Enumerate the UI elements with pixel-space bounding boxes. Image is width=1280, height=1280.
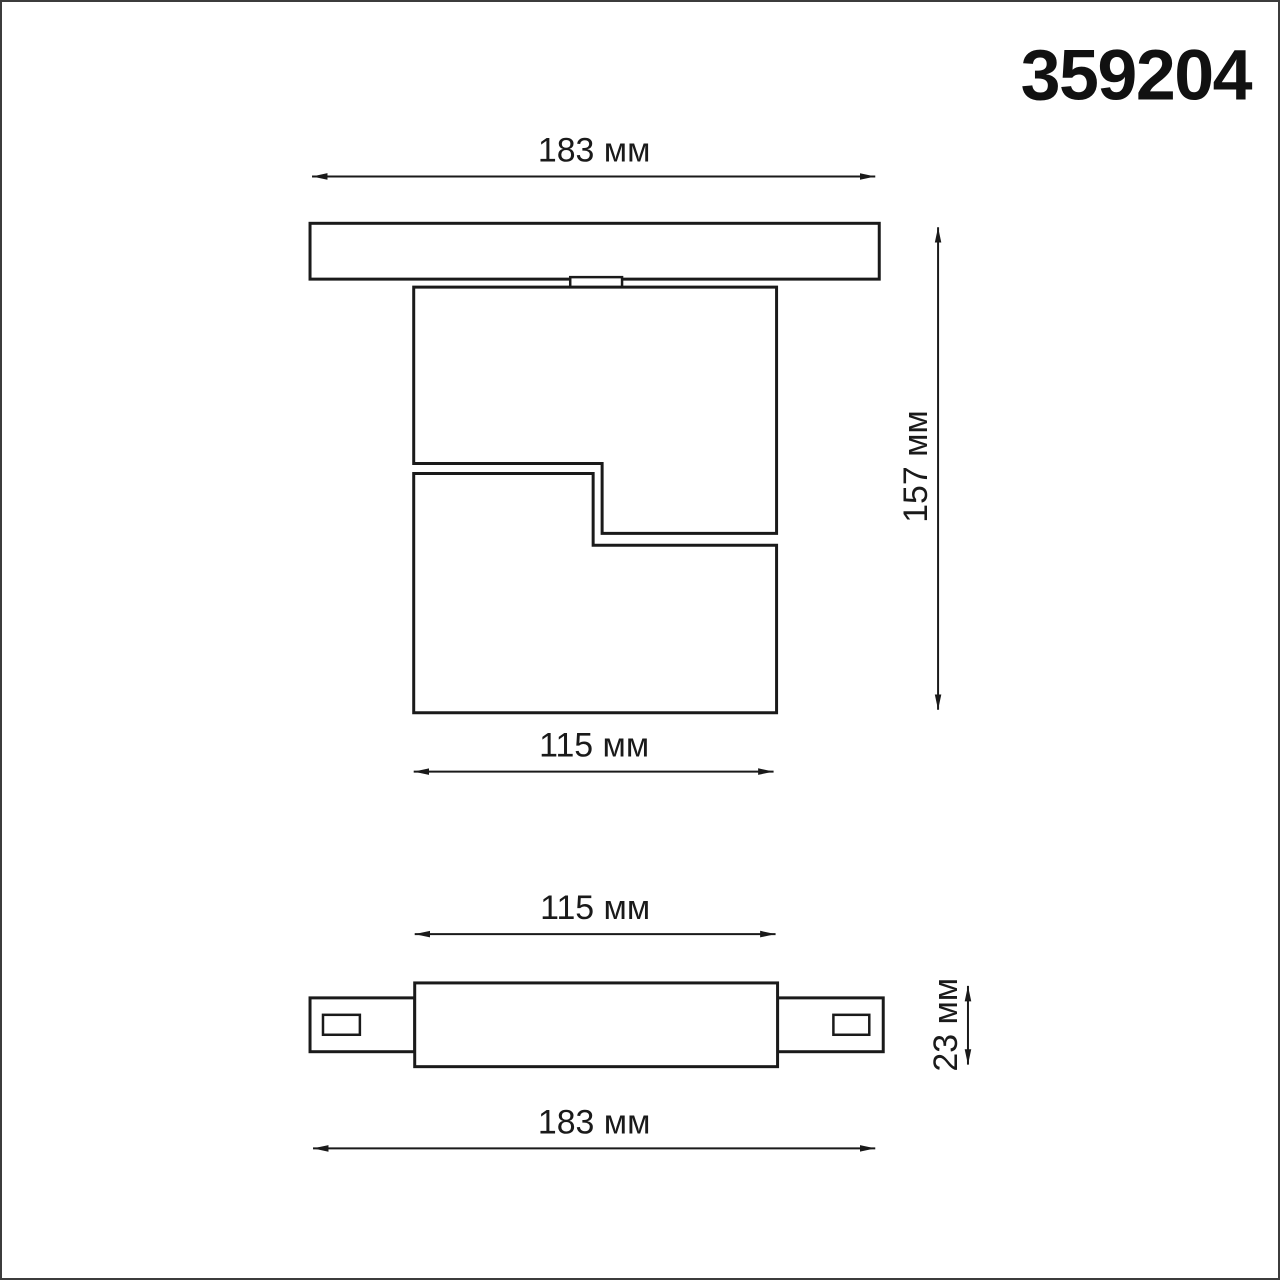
dim-label-connector-total-width: 183 мм — [538, 1103, 651, 1141]
dim-label-connector-depth: 23 мм — [927, 978, 965, 1072]
bottom-view: 115 мм 23 мм 183 мм — [310, 889, 968, 1148]
left-contact-slot — [323, 1015, 360, 1035]
connector-body-outline — [415, 983, 778, 1067]
track-bar-outline — [310, 223, 879, 279]
dimension-connector-total-width: 183 мм — [313, 1103, 875, 1148]
right-contact-slot — [833, 1015, 869, 1035]
dimension-connector-body-width: 115 мм — [415, 889, 776, 934]
dimension-body-width: 115 мм — [414, 727, 774, 772]
dim-label-body-width: 115 мм — [539, 727, 649, 765]
technical-drawing-page: 183 мм 157 мм 115 мм — [0, 0, 1280, 1280]
dimension-connector-depth: 23 мм — [927, 978, 968, 1072]
side-view: 183 мм 157 мм 115 мм — [310, 132, 938, 772]
dimension-overall-height: 157 мм — [897, 227, 938, 709]
dim-label-track-width: 183 мм — [538, 132, 651, 170]
dimension-drawing: 183 мм 157 мм 115 мм — [2, 2, 1278, 1278]
dimension-track-width: 183 мм — [312, 132, 875, 177]
dim-label-connector-body-width: 115 мм — [540, 889, 650, 927]
product-code: 359204 — [1021, 36, 1253, 116]
dim-label-overall-height: 157 мм — [897, 410, 935, 523]
